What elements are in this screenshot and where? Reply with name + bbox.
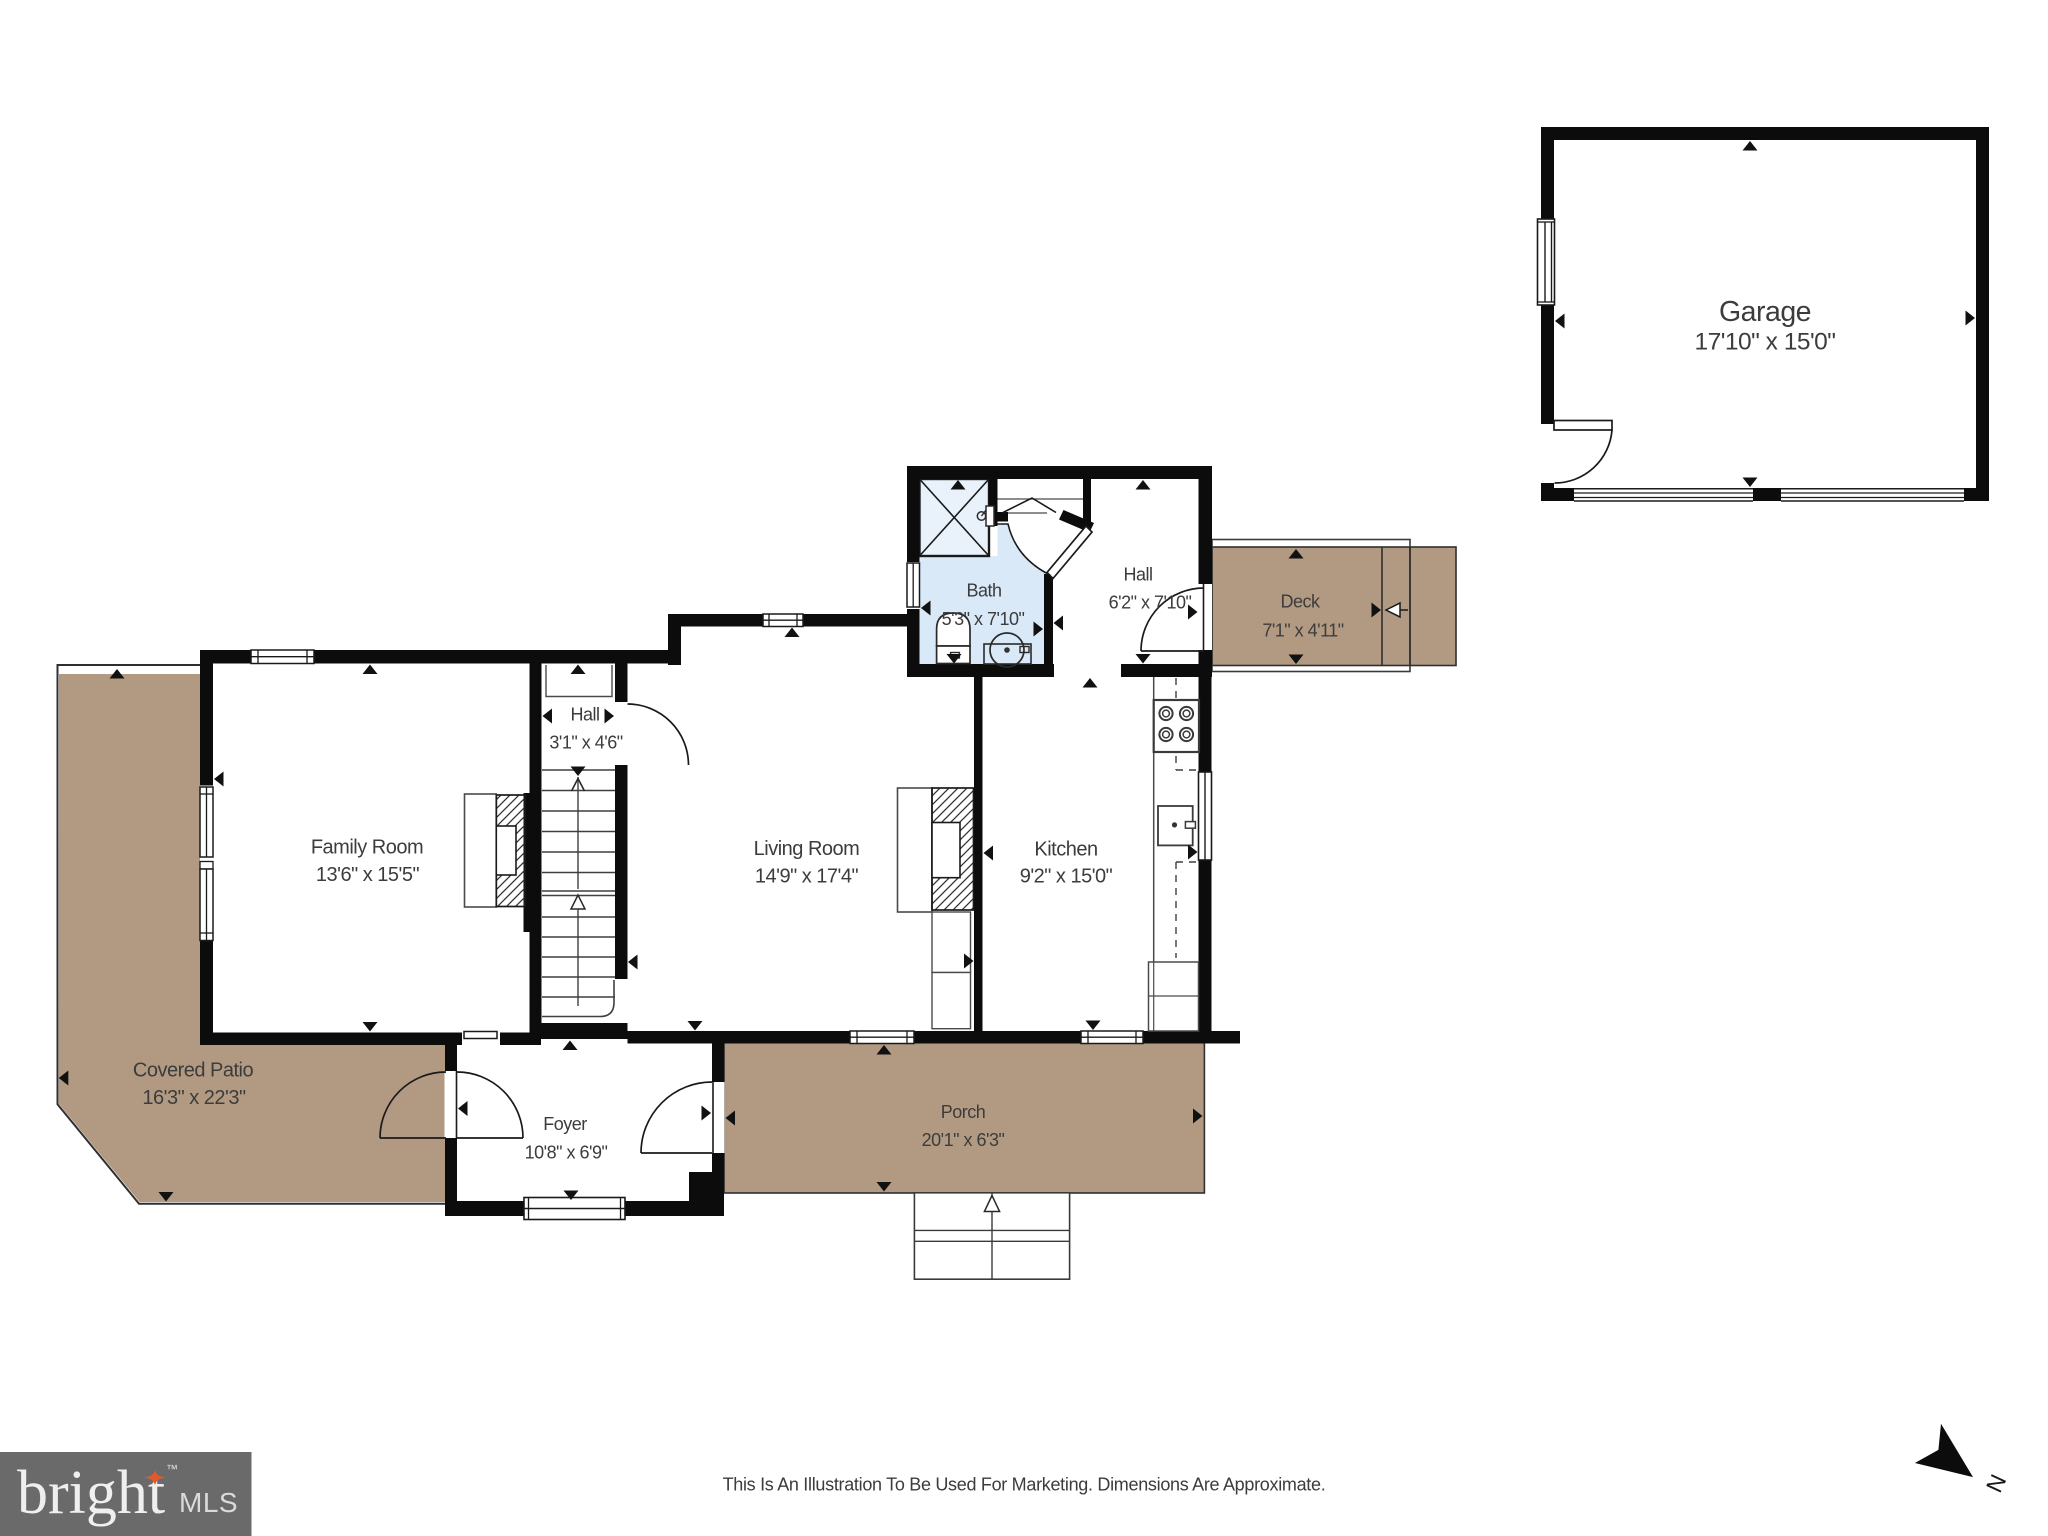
svg-text:20'1" x 6'3": 20'1" x 6'3" xyxy=(922,1130,1005,1150)
svg-text:9'2" x 15'0": 9'2" x 15'0" xyxy=(1020,866,1113,888)
svg-text:Deck: Deck xyxy=(1280,592,1321,612)
svg-text:6'2" x 7'10": 6'2" x 7'10" xyxy=(1109,593,1192,613)
svg-text:Covered Patio: Covered Patio xyxy=(133,1060,254,1082)
svg-text:Hall: Hall xyxy=(1123,565,1152,585)
svg-text:5'3" x 7'10": 5'3" x 7'10" xyxy=(942,609,1025,629)
svg-text:Family Room: Family Room xyxy=(311,837,423,859)
svg-text:Foyer: Foyer xyxy=(543,1114,587,1134)
svg-text:7'1" x 4'11": 7'1" x 4'11" xyxy=(1262,621,1343,641)
svg-text:3'1" x 4'6": 3'1" x 4'6" xyxy=(549,733,622,753)
svg-text:Kitchen: Kitchen xyxy=(1034,839,1097,861)
svg-text:13'6" x 15'5": 13'6" x 15'5" xyxy=(316,864,420,886)
svg-text:Garage: Garage xyxy=(1719,296,1811,328)
svg-text:bright: bright xyxy=(17,1459,165,1527)
svg-text:This Is An Illustration To Be: This Is An Illustration To Be Used For M… xyxy=(723,1475,1326,1495)
svg-text:™: ™ xyxy=(166,1462,178,1476)
svg-text:Hall: Hall xyxy=(570,705,599,725)
svg-text:MLS: MLS xyxy=(179,1487,238,1518)
svg-text:10'8" x 6'9": 10'8" x 6'9" xyxy=(525,1143,608,1163)
svg-text:17'10" x 15'0": 17'10" x 15'0" xyxy=(1695,329,1836,356)
svg-text:14'9" x 17'4": 14'9" x 17'4" xyxy=(755,866,859,888)
svg-text:Living Room: Living Room xyxy=(754,838,860,860)
svg-text:Bath: Bath xyxy=(966,581,1001,601)
svg-text:16'3" x 22'3": 16'3" x 22'3" xyxy=(142,1087,246,1109)
svg-text:Porch: Porch xyxy=(941,1102,986,1122)
